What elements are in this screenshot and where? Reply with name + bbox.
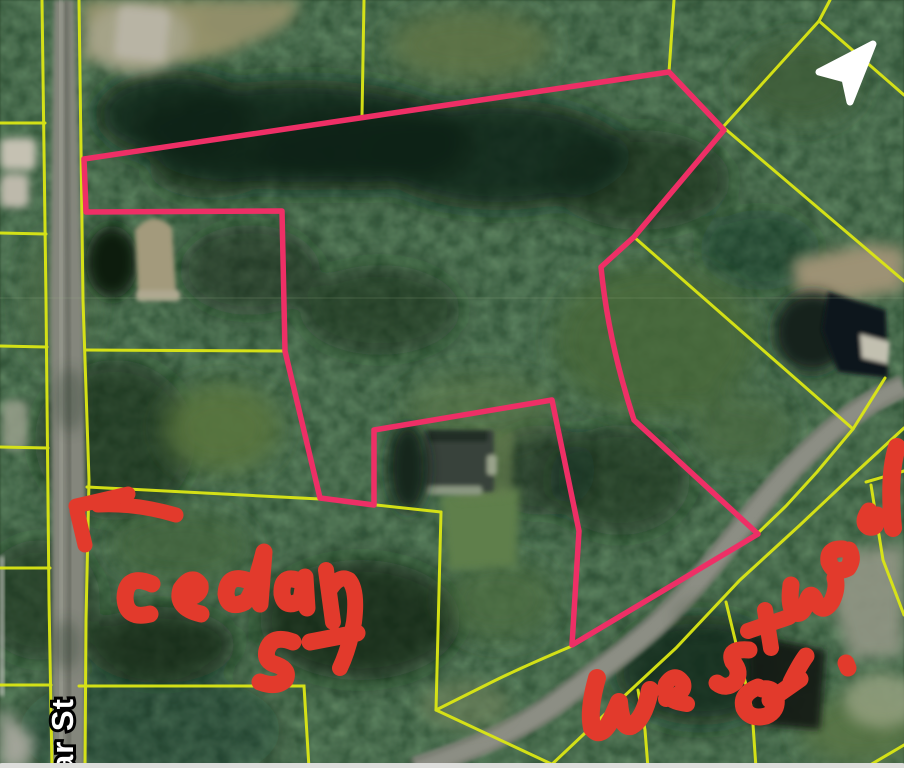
svg-text:ar St: ar St xyxy=(45,698,80,768)
